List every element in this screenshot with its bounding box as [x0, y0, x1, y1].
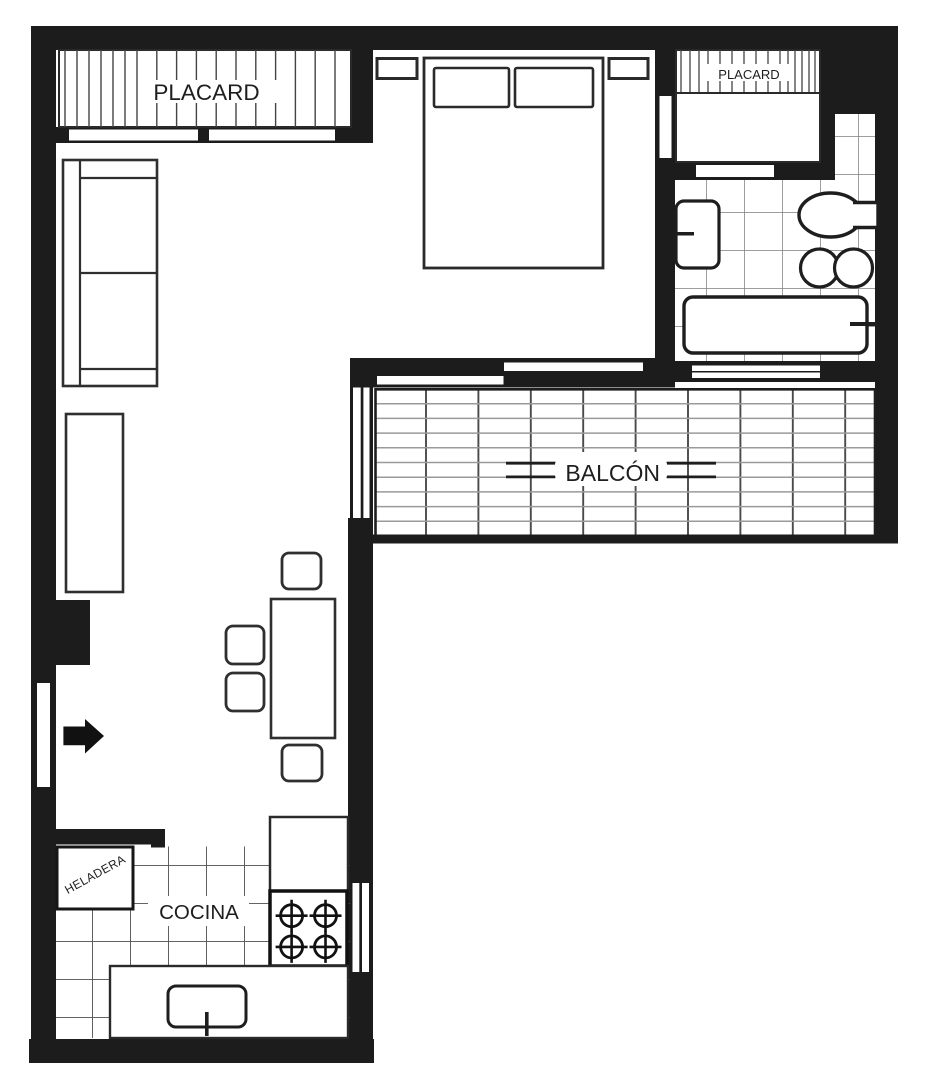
svg-text:PLACARD: PLACARD	[718, 67, 779, 82]
svg-text:PLACARD: PLACARD	[153, 80, 259, 105]
svg-text:COCINA: COCINA	[159, 901, 239, 924]
svg-text:BALCÓN: BALCÓN	[565, 460, 660, 486]
